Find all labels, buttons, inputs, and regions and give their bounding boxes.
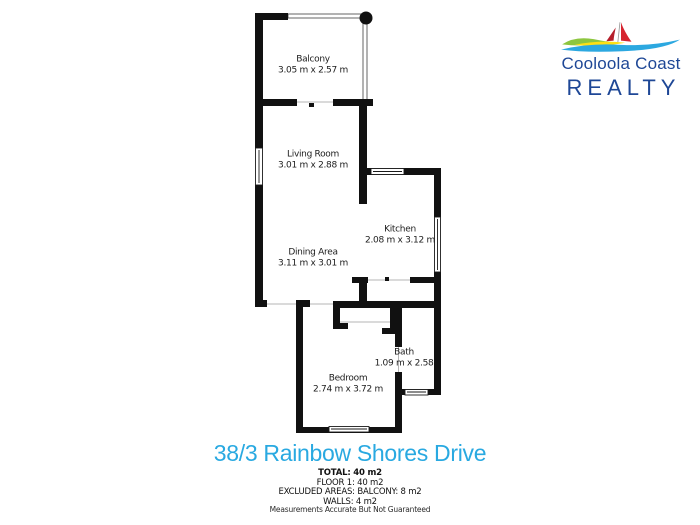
- room-name: Living Room: [278, 150, 348, 161]
- room-dims: 3.01 m x 2.88 m: [278, 160, 348, 171]
- room-name: Dining Area: [278, 248, 348, 259]
- room-name: Bedroom: [313, 374, 383, 385]
- logo-realty-text: REALTY: [550, 75, 692, 101]
- room-label-kitchen: Kitchen 2.08 m x 3.12 m: [365, 225, 435, 246]
- room-label-bath: Bath 1.09 m x 2.58: [375, 348, 434, 369]
- room-name: Balcony: [278, 55, 348, 66]
- floor-plan-page: Balcony 3.05 m x 2.57 m Living Room 3.01…: [0, 0, 700, 525]
- room-label-balcony: Balcony 3.05 m x 2.57 m: [278, 55, 348, 76]
- disclaimer-text: Measurements Accurate But Not Guaranteed: [0, 505, 700, 514]
- area-summary: TOTAL: 40 m2 FLOOR 1: 40 m2 EXCLUDED ARE…: [0, 469, 700, 507]
- room-name: Bath: [375, 348, 434, 359]
- room-label-bedroom: Bedroom 2.74 m x 3.72 m: [313, 374, 383, 395]
- sailboat-waves-icon: [560, 21, 682, 53]
- room-dims: 2.74 m x 3.72 m: [313, 384, 383, 395]
- room-label-dining-area: Dining Area 3.11 m x 3.01 m: [278, 248, 348, 269]
- column-dot: [360, 12, 373, 25]
- room-dims: 1.09 m x 2.58: [375, 358, 434, 369]
- property-address-title: 38/3 Rainbow Shores Drive: [0, 440, 700, 467]
- room-label-living-room: Living Room 3.01 m x 2.88 m: [278, 150, 348, 171]
- room-dims: 3.05 m x 2.57 m: [278, 65, 348, 76]
- walls: [255, 13, 441, 433]
- room-dims: 3.11 m x 3.01 m: [278, 258, 348, 269]
- realty-logo: Cooloola Coast REALTY: [550, 21, 692, 101]
- room-dims: 2.08 m x 3.12 m: [365, 235, 435, 246]
- room-name: Kitchen: [365, 225, 435, 236]
- logo-name-text: Cooloola Coast: [550, 54, 692, 74]
